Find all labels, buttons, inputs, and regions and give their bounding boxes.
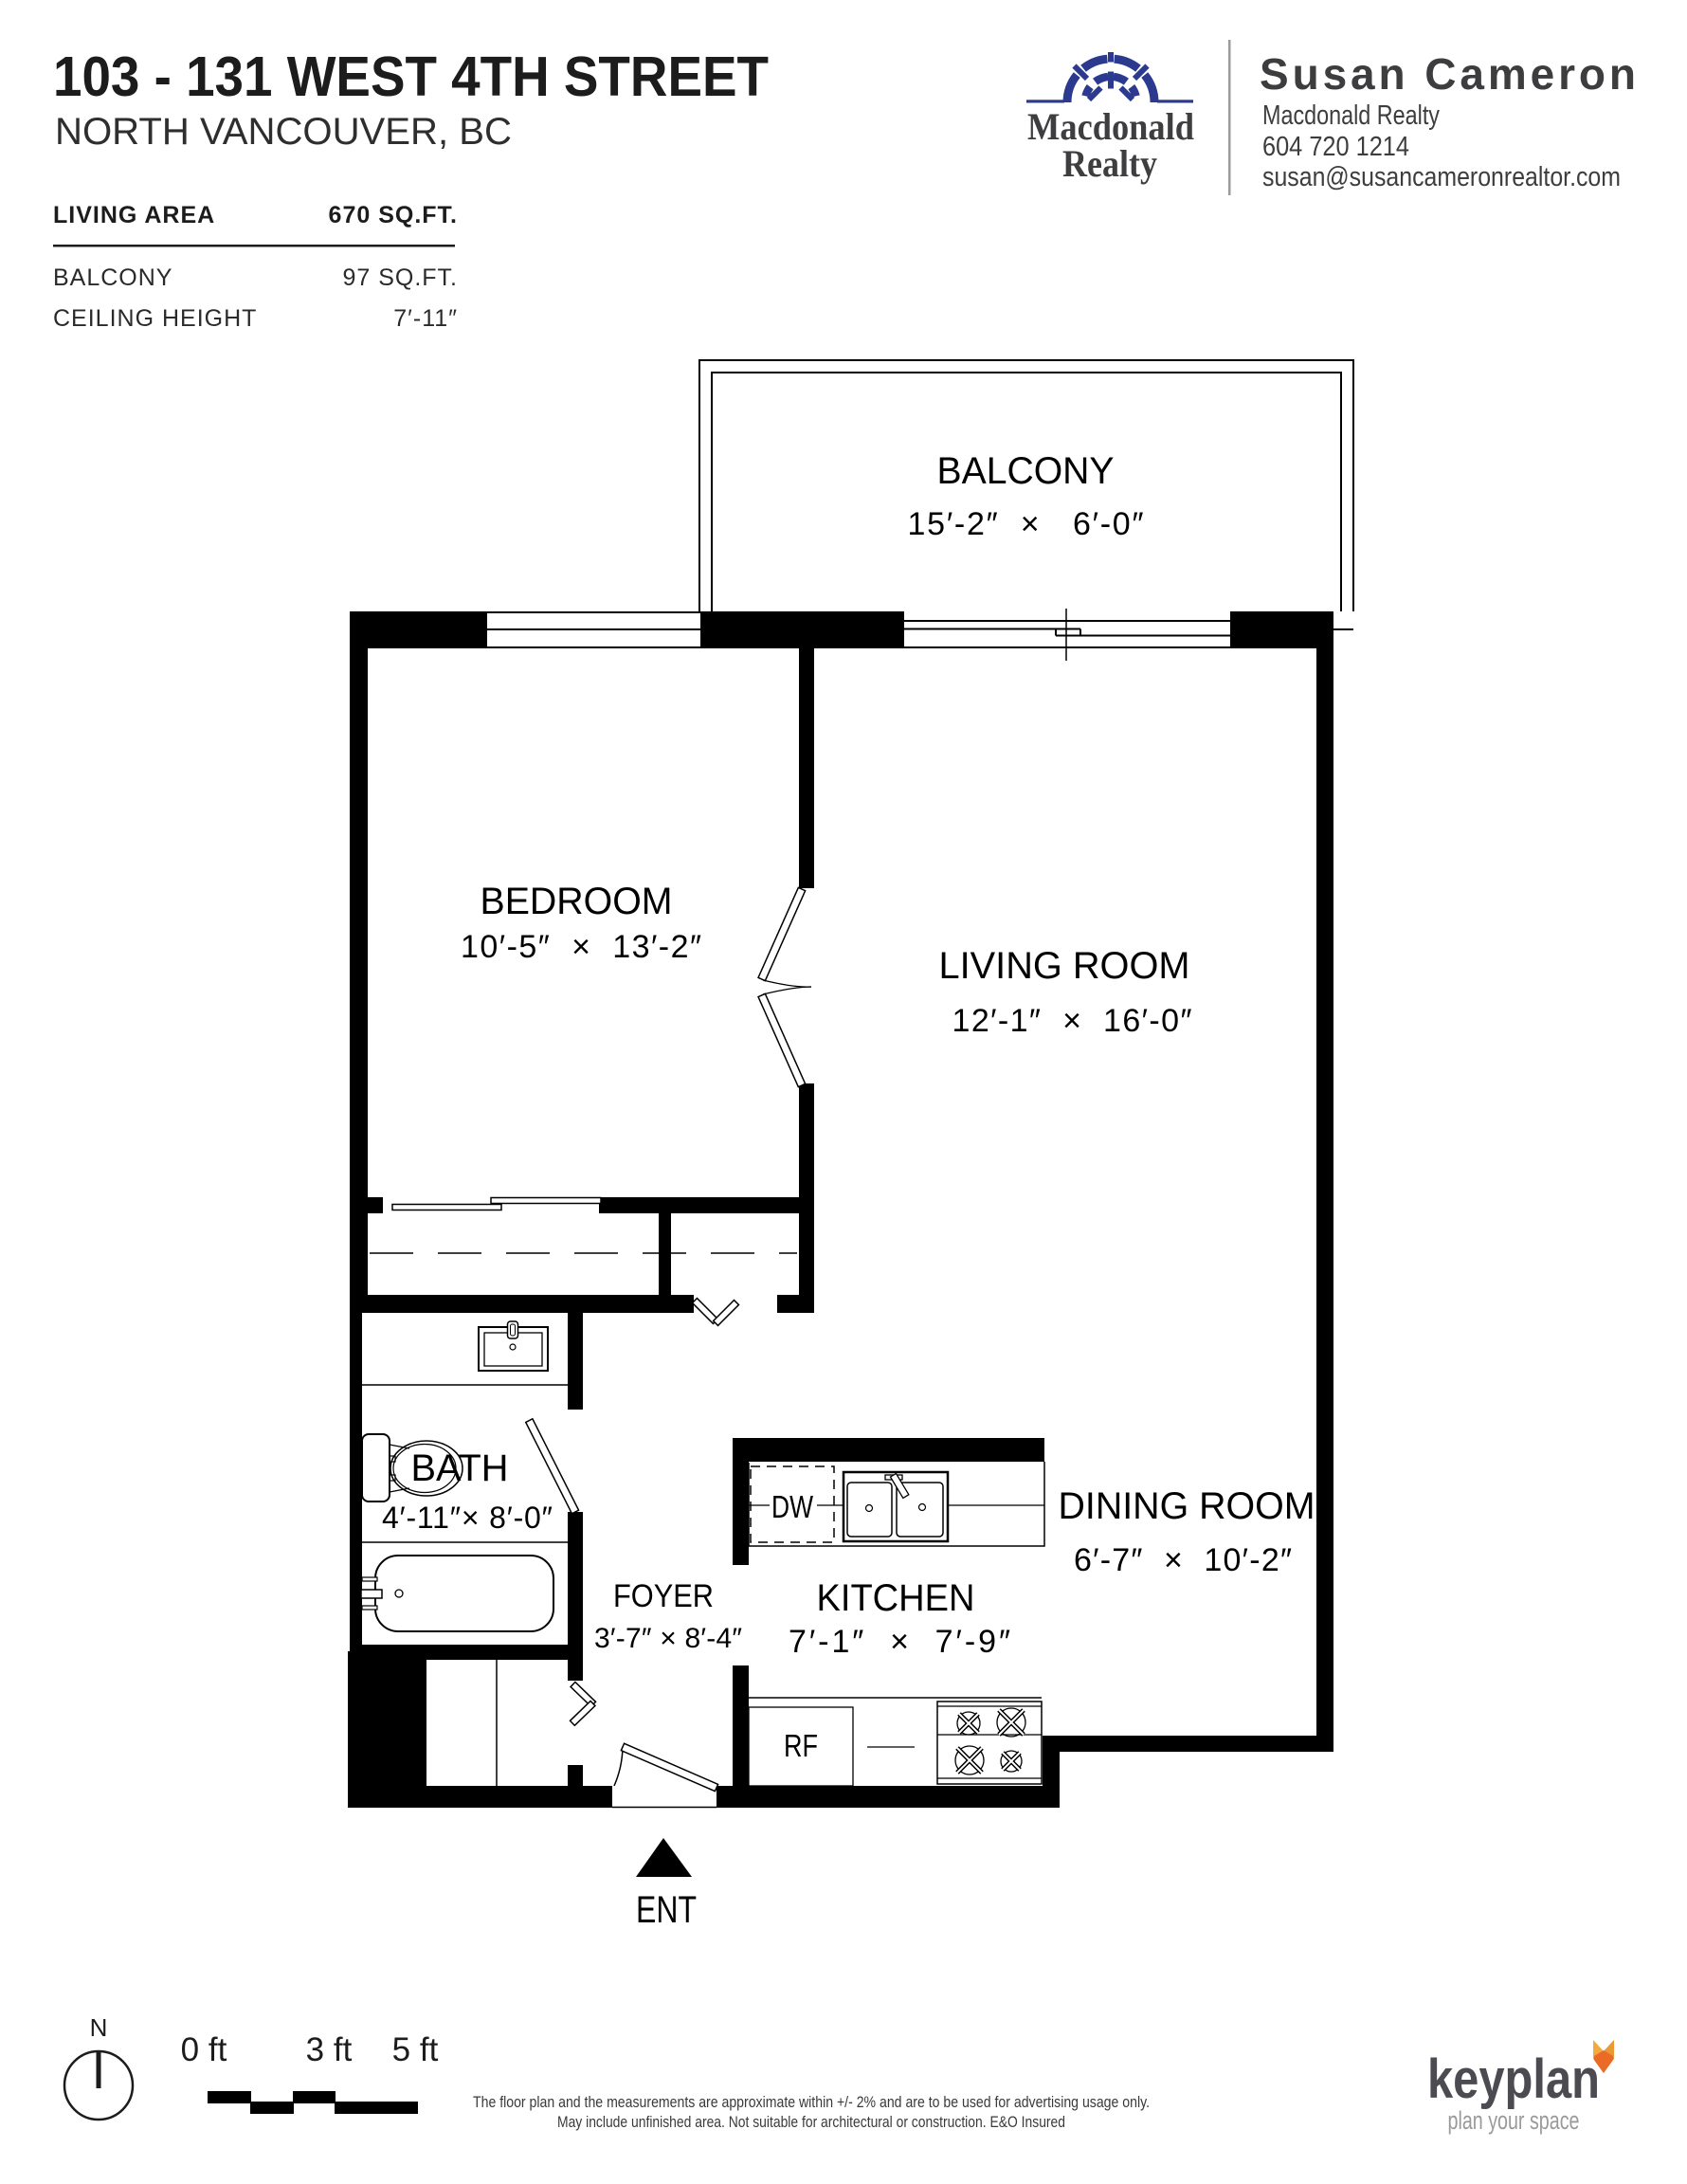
svg-text:4′-11″× 8′-0″: 4′-11″× 8′-0″ <box>382 1501 553 1535</box>
svg-text:keyplan: keyplan <box>1427 2048 1600 2110</box>
svg-text:NORTH VANCOUVER, BC: NORTH VANCOUVER, BC <box>55 111 512 153</box>
svg-text:12′-1″ × 16′-0″: 12′-1″ × 16′-0″ <box>952 1003 1192 1039</box>
svg-text:5 ft: 5 ft <box>392 2031 439 2068</box>
svg-text:10′-5″ × 13′-2″: 10′-5″ × 13′-2″ <box>461 929 701 965</box>
svg-text:Macdonald Realty: Macdonald Realty <box>1262 100 1440 131</box>
svg-text:The floor plan and the measure: The floor plan and the measurements are … <box>473 2093 1150 2111</box>
svg-text:97 SQ.FT.: 97 SQ.FT. <box>342 264 458 291</box>
svg-text:ENT: ENT <box>636 1889 697 1931</box>
svg-text:DW: DW <box>771 1489 814 1524</box>
svg-text:CEILING HEIGHT: CEILING HEIGHT <box>53 305 257 332</box>
svg-text:N: N <box>90 2013 108 2042</box>
svg-text:15′-2″ × 6′-0″: 15′-2″ × 6′-0″ <box>908 506 1144 542</box>
svg-text:LIVING AREA: LIVING AREA <box>53 202 215 228</box>
svg-text:LIVING ROOM: LIVING ROOM <box>939 945 1190 987</box>
svg-text:Realty: Realty <box>1062 142 1157 185</box>
svg-text:3 ft: 3 ft <box>306 2031 353 2068</box>
svg-text:FOYER: FOYER <box>613 1578 714 1614</box>
svg-text:BALCONY: BALCONY <box>53 264 172 291</box>
svg-text:susan@susancameronrealtor.com: susan@susancameronrealtor.com <box>1262 162 1621 192</box>
svg-text:RF: RF <box>784 1728 818 1763</box>
svg-text:plan your space: plan your space <box>1448 2106 1580 2135</box>
svg-text:May include unfinished area. N: May include unfinished area. Not suitabl… <box>557 2113 1065 2131</box>
svg-text:BALCONY: BALCONY <box>937 450 1115 492</box>
svg-text:BEDROOM: BEDROOM <box>481 881 673 922</box>
svg-text:0 ft: 0 ft <box>181 2031 227 2068</box>
svg-text:BATH: BATH <box>411 1447 509 1489</box>
svg-text:103 - 131 WEST 4TH STREET: 103 - 131 WEST 4TH STREET <box>53 45 769 108</box>
svg-text:670 SQ.FT.: 670 SQ.FT. <box>329 202 458 228</box>
svg-text:Susan Cameron: Susan Cameron <box>1260 49 1636 99</box>
svg-text:3′-7″ × 8′-4″: 3′-7″ × 8′-4″ <box>594 1623 742 1654</box>
svg-text:KITCHEN: KITCHEN <box>817 1577 975 1619</box>
svg-text:7′-11″: 7′-11″ <box>393 305 458 332</box>
svg-text:604 720 1214: 604 720 1214 <box>1262 132 1409 162</box>
svg-text:DINING ROOM: DINING ROOM <box>1059 1485 1315 1527</box>
